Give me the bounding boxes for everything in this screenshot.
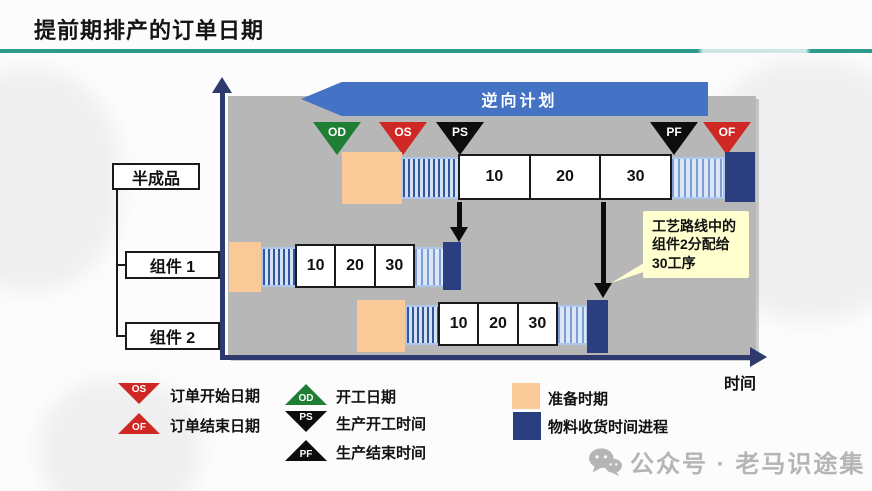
time-axis-arrow-icon xyxy=(750,347,767,367)
op-segment: 20 xyxy=(529,156,600,198)
bracket-line xyxy=(116,335,126,337)
legend-ps-icon: PS xyxy=(285,411,327,432)
watermark: 公众号 · 老马识途集 xyxy=(588,444,865,479)
legend-os-label: 订单开始日期 xyxy=(170,385,260,406)
title-underline xyxy=(0,49,872,53)
op-segment: 20 xyxy=(334,246,373,286)
receipt-block-comp2 xyxy=(587,300,608,353)
dependency-arrow-comp1 xyxy=(457,202,462,228)
row-label-component-1: 组件 1 xyxy=(125,251,220,279)
y-axis xyxy=(220,92,225,358)
legend-receipt-label: 物料收货时间进程 xyxy=(548,416,668,437)
map-decoration xyxy=(0,70,120,290)
legend-pf-label: 生产结束时间 xyxy=(336,442,426,463)
op-segment: 10 xyxy=(440,304,477,344)
y-axis-arrow-icon xyxy=(212,77,232,93)
legend-pf-icon: PF xyxy=(285,440,327,461)
row-label-semi-finished: 半成品 xyxy=(112,163,200,190)
legend-od-symbol: OD xyxy=(299,393,314,404)
hatch-segment xyxy=(263,249,295,285)
ops-segments-comp1: 10 20 30 xyxy=(295,244,415,288)
hatch-segment xyxy=(672,159,723,197)
backward-plan-arrow: 逆向计划 xyxy=(301,82,708,116)
op-segment: 10 xyxy=(460,156,529,198)
watermark-text: 公众号 · 老马识途集 xyxy=(630,444,865,479)
receipt-block-semi xyxy=(725,152,755,202)
legend-of-label: 订单结束日期 xyxy=(170,415,260,436)
op-segment: 20 xyxy=(477,304,516,344)
marker-od-label: OD xyxy=(328,125,346,139)
marker-pf-label: PF xyxy=(666,125,681,139)
row-label-component-2: 组件 2 xyxy=(125,322,220,350)
legend-of-symbol: OF xyxy=(132,422,146,433)
op-segment: 30 xyxy=(517,304,556,344)
op-segment: 10 xyxy=(297,246,334,286)
hatch-segment xyxy=(403,159,458,197)
legend-os-symbol: OS xyxy=(132,384,146,395)
legend-receipt-swatch xyxy=(513,412,541,440)
marker-os-label: OS xyxy=(394,125,411,139)
page-title: 提前期排产的订单日期 xyxy=(34,13,264,45)
ops-segments-semi: 10 20 30 xyxy=(458,154,672,200)
legend-od-label: 开工日期 xyxy=(336,386,396,407)
wechat-icon xyxy=(588,447,622,477)
dependency-arrow-comp2 xyxy=(601,202,606,284)
prep-block-comp1 xyxy=(229,242,261,292)
legend-prep-label: 准备时期 xyxy=(548,388,608,409)
dependency-arrow-comp2-head-icon xyxy=(594,283,612,298)
legend-ps-symbol: PS xyxy=(299,412,312,423)
hatch-segment xyxy=(415,249,443,285)
legend-prep-swatch xyxy=(512,383,540,409)
dependency-arrow-comp1-head-icon xyxy=(450,227,468,242)
slide: 提前期排产的订单日期 时间 逆向计划 OD OS PS PF OF 半成品 组件… xyxy=(0,0,872,491)
time-axis xyxy=(220,355,752,360)
legend-ps-label: 生产开工时间 xyxy=(336,413,426,434)
marker-of-label: OF xyxy=(719,125,736,139)
hatch-segment xyxy=(558,307,586,343)
prep-block-comp2 xyxy=(357,300,405,352)
hatch-segment xyxy=(407,307,438,343)
ops-segments-comp2: 10 20 30 xyxy=(438,302,558,346)
prep-block-semi xyxy=(342,152,402,204)
legend-od-icon: OD xyxy=(285,384,327,405)
backward-plan-arrow-label: 逆向计划 xyxy=(481,87,557,111)
time-axis-label: 时间 xyxy=(724,370,756,394)
marker-ps-label: PS xyxy=(452,125,468,139)
receipt-block-comp1 xyxy=(443,242,461,290)
op-segment: 30 xyxy=(599,156,670,198)
bracket-line xyxy=(116,264,126,266)
op-segment: 30 xyxy=(374,246,413,286)
legend-pf-symbol: PF xyxy=(300,449,313,460)
callout-bubble: 工艺路线中的组件2分配给30工序 xyxy=(643,211,749,278)
